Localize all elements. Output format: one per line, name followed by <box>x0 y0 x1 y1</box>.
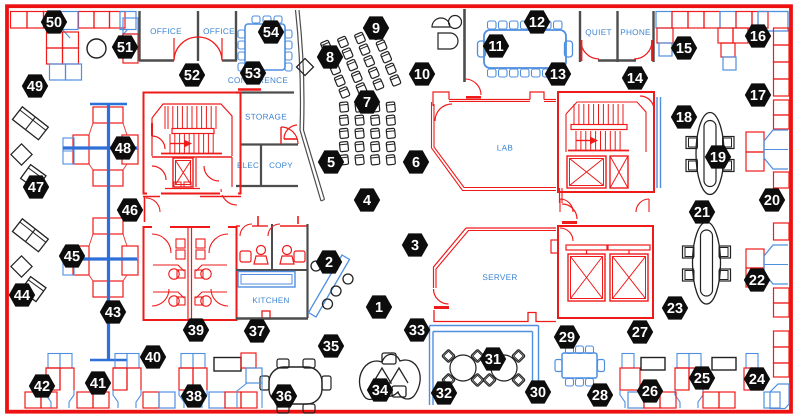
svg-text:50: 50 <box>46 15 62 31</box>
svg-text:44: 44 <box>14 288 30 304</box>
svg-text:17: 17 <box>750 88 766 104</box>
svg-text:28: 28 <box>592 388 608 404</box>
svg-text:52: 52 <box>184 68 200 84</box>
svg-text:3: 3 <box>411 238 419 254</box>
svg-text:KITCHEN: KITCHEN <box>252 296 289 305</box>
svg-text:QUIET: QUIET <box>585 28 612 37</box>
svg-text:SERVER: SERVER <box>482 273 517 282</box>
svg-text:16: 16 <box>750 29 766 45</box>
svg-text:37: 37 <box>249 324 265 340</box>
svg-text:35: 35 <box>323 339 339 355</box>
svg-text:39: 39 <box>188 323 204 339</box>
svg-text:24: 24 <box>749 372 765 388</box>
svg-text:25: 25 <box>694 371 710 387</box>
svg-text:23: 23 <box>667 301 683 317</box>
svg-text:20: 20 <box>764 193 780 209</box>
svg-text:STORAGE: STORAGE <box>245 113 287 122</box>
svg-text:19: 19 <box>710 150 726 166</box>
svg-text:COPY: COPY <box>269 161 293 170</box>
svg-text:45: 45 <box>64 249 80 265</box>
svg-text:36: 36 <box>276 389 292 405</box>
svg-text:10: 10 <box>414 67 430 83</box>
svg-text:33: 33 <box>409 323 425 339</box>
svg-text:53: 53 <box>245 66 261 82</box>
svg-text:48: 48 <box>115 141 131 157</box>
svg-text:OFFICE: OFFICE <box>150 27 182 36</box>
svg-text:47: 47 <box>28 180 44 196</box>
svg-text:27: 27 <box>632 325 648 341</box>
svg-text:49: 49 <box>27 79 43 95</box>
svg-text:43: 43 <box>105 305 121 321</box>
svg-text:5: 5 <box>327 155 335 171</box>
svg-text:22: 22 <box>749 273 765 289</box>
svg-text:15: 15 <box>676 41 692 57</box>
svg-text:30: 30 <box>530 385 546 401</box>
svg-text:7: 7 <box>363 95 371 111</box>
svg-text:34: 34 <box>372 383 388 399</box>
svg-text:26: 26 <box>642 384 658 400</box>
svg-text:OFFICE: OFFICE <box>203 27 235 36</box>
svg-text:42: 42 <box>34 379 50 395</box>
svg-text:1: 1 <box>375 300 383 316</box>
svg-text:4: 4 <box>363 193 371 209</box>
svg-text:13: 13 <box>550 67 566 83</box>
svg-text:9: 9 <box>372 21 380 37</box>
svg-text:2: 2 <box>325 255 333 271</box>
svg-text:41: 41 <box>90 376 106 392</box>
svg-text:54: 54 <box>263 25 279 41</box>
svg-text:LAB: LAB <box>497 144 514 153</box>
svg-text:12: 12 <box>529 15 545 31</box>
svg-text:32: 32 <box>436 386 452 402</box>
svg-text:8: 8 <box>326 50 334 66</box>
svg-text:31: 31 <box>485 352 501 368</box>
svg-text:40: 40 <box>145 350 161 366</box>
svg-text:29: 29 <box>559 330 575 346</box>
svg-text:21: 21 <box>694 205 710 221</box>
svg-text:46: 46 <box>122 203 138 219</box>
svg-text:14: 14 <box>627 71 643 87</box>
svg-text:18: 18 <box>676 110 692 126</box>
svg-text:51: 51 <box>117 40 133 56</box>
svg-text:38: 38 <box>186 389 202 405</box>
svg-text:PHONE: PHONE <box>620 28 651 37</box>
svg-text:6: 6 <box>412 155 420 171</box>
svg-text:11: 11 <box>488 39 503 55</box>
